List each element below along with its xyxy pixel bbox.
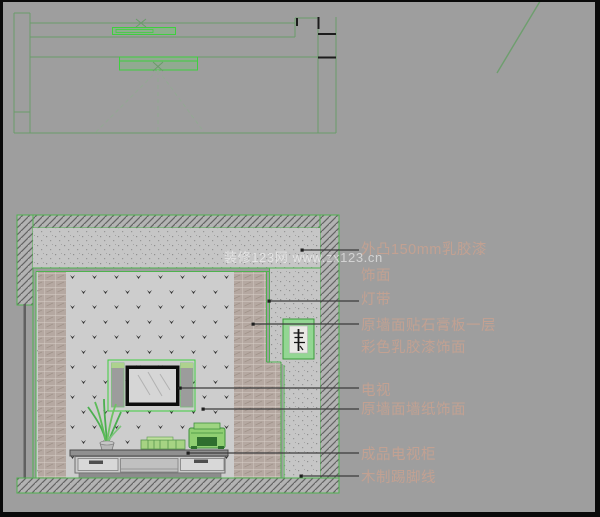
cad-screenshot-canvas: 外凸150mm乳胶漆饰面 灯带 原墙面贴石膏板一层彩色乳胶漆饰面 电视 原墙面墙… xyxy=(0,0,600,517)
watermark: 装修123网 www.zx123.cn xyxy=(224,247,383,266)
tick-marks xyxy=(297,17,336,58)
annotation-label-wallpaper: 原墙面墙纸饰面 xyxy=(361,400,466,421)
tv-screen xyxy=(126,366,180,407)
screenshot-border-top xyxy=(0,0,600,2)
annotation-label-skirting: 木制踢脚线 xyxy=(361,468,436,489)
tv-cabinet xyxy=(70,450,228,478)
plant-pot xyxy=(100,441,114,450)
projection-lines xyxy=(96,70,204,132)
annotation-label-tv: 电视 xyxy=(361,381,391,402)
picture-frame xyxy=(283,319,314,359)
plan-view xyxy=(14,13,336,133)
skirting-hatch xyxy=(17,478,339,493)
protruding-band-right-lower xyxy=(283,363,320,478)
decor-model xyxy=(189,423,225,449)
tv-speaker-left xyxy=(112,363,125,407)
gypsum-pilaster-right xyxy=(234,272,267,478)
plan-tv-upper xyxy=(113,28,176,35)
annotation-label-tv-cabinet: 成品电视柜 xyxy=(361,445,436,466)
cabinet-plinth xyxy=(79,473,221,478)
plan-tv-lower xyxy=(120,57,198,70)
tv-unit xyxy=(108,360,195,411)
drawer-handle xyxy=(89,461,103,465)
screenshot-border-bottom xyxy=(0,512,600,517)
gypsum-pilaster-left xyxy=(38,272,66,478)
tv-speaker-right xyxy=(181,363,194,407)
diagonal-leader-line xyxy=(497,0,542,73)
cabinet-drawer-left xyxy=(78,459,118,471)
left-wall-edge-line xyxy=(24,304,27,478)
annotation-label-gypsum-board: 原墙面贴石膏板一层彩色乳胶漆饰面 xyxy=(361,315,497,359)
annotation-label-light-strip: 灯带 xyxy=(361,290,391,311)
drawer-handle xyxy=(194,460,208,464)
screenshot-border-right xyxy=(595,0,600,517)
cabinet-open-shelf xyxy=(121,459,179,473)
ceiling-section-hatch xyxy=(17,215,339,228)
left-wall-section-hatch xyxy=(17,215,33,305)
screenshot-border-left xyxy=(0,0,3,517)
cabinet-drawer-right xyxy=(181,459,225,471)
gypsum-pilaster-right-lower xyxy=(267,363,281,478)
